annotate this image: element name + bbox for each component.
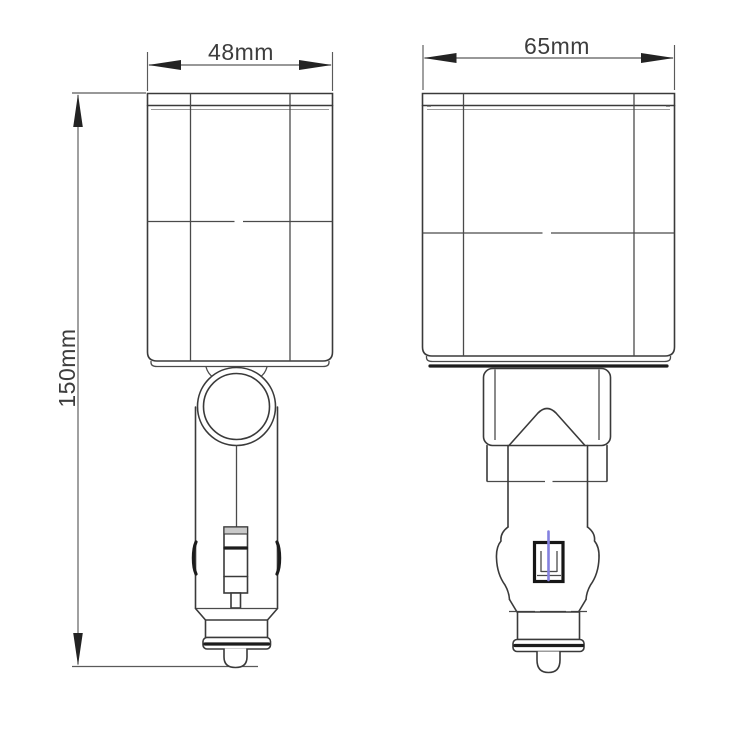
arrow-right-icon — [299, 60, 332, 70]
base-band — [151, 361, 329, 367]
arrow-right-icon — [641, 53, 674, 63]
plug-tip — [224, 649, 247, 668]
swivel-block — [484, 369, 611, 446]
technical-drawing-page: 150mm 48mm 65mm — [0, 0, 750, 750]
arrow-up-icon — [73, 94, 83, 127]
side-clip-left — [496, 527, 509, 600]
arrow-down-icon — [73, 633, 83, 666]
collar — [518, 612, 580, 640]
body-outline — [148, 94, 333, 362]
dimension-width-side: 65mm — [423, 33, 675, 90]
arrow-left-icon — [424, 53, 457, 63]
plug-tip — [537, 652, 560, 673]
front-view — [148, 94, 333, 668]
contact-slot-cap — [224, 527, 248, 534]
ball-joint-outer — [198, 368, 276, 446]
side-view — [423, 94, 675, 673]
body-outline — [423, 94, 675, 357]
taper-edges — [196, 609, 278, 621]
collar — [206, 620, 268, 638]
side-width-dimension-label: 65mm — [524, 33, 590, 59]
dimension-width-front: 48mm — [148, 39, 333, 91]
base-band — [427, 356, 671, 362]
taper-edges — [510, 600, 587, 613]
front-width-dimension-label: 48mm — [208, 39, 274, 65]
arrow-left-icon — [148, 60, 181, 70]
side-clip-right — [586, 527, 599, 600]
height-dimension-label: 150mm — [54, 328, 80, 407]
technical-drawing-canvas: 150mm 48mm 65mm — [0, 0, 750, 750]
contact-stub — [231, 593, 241, 608]
contact-slot — [224, 527, 248, 593]
